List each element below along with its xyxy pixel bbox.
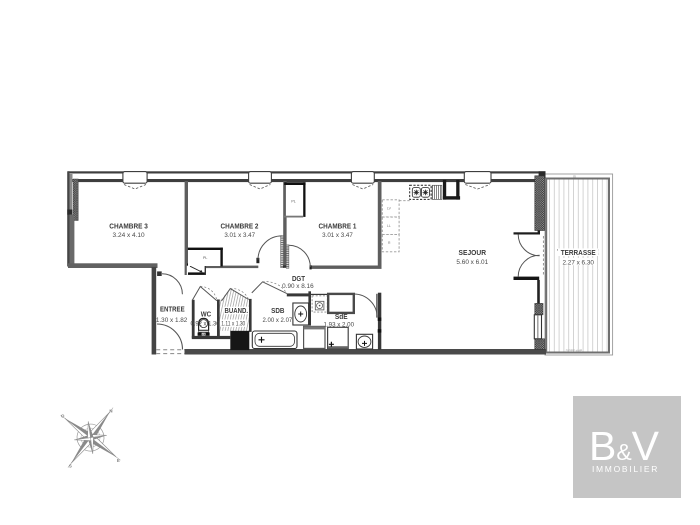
svg-text:ENTREE: ENTREE — [160, 305, 185, 314]
svg-text:PL: PL — [291, 199, 295, 203]
svg-text:1.93 x 2.00: 1.93 x 2.00 — [324, 322, 355, 329]
svg-text:N: N — [109, 409, 112, 414]
svg-text:3.01 x 3.47: 3.01 x 3.47 — [224, 232, 255, 239]
svg-text:TERRASSE: TERRASSE — [561, 248, 596, 257]
svg-text:5.60 x 6.01: 5.60 x 6.01 — [456, 259, 488, 266]
svg-text:E: E — [117, 458, 120, 463]
svg-text:O: O — [61, 413, 65, 418]
svg-text:DPPF+HP: DPPF+HP — [566, 349, 583, 353]
svg-text:BUAND.: BUAND. — [225, 306, 249, 315]
svg-text:2.00 x 2.07: 2.00 x 2.07 — [263, 317, 293, 324]
svg-text:3.01 x 3.47: 3.01 x 3.47 — [322, 232, 353, 239]
svg-text:CHAMBRE 1: CHAMBRE 1 — [319, 222, 357, 231]
svg-text:0.90 x 8.16: 0.90 x 8.16 — [282, 283, 314, 290]
svg-text:3.24 x 4.10: 3.24 x 4.10 — [113, 232, 145, 239]
svg-text:CHAMBRE 3: CHAMBRE 3 — [109, 222, 148, 231]
svg-text:2.27 x 6.30: 2.27 x 6.30 — [563, 259, 595, 266]
svg-text:1.30 x 1.82: 1.30 x 1.82 — [156, 317, 188, 324]
svg-text:SDB: SDB — [271, 306, 284, 315]
svg-text:DGT: DGT — [292, 274, 306, 283]
svg-text:WC: WC — [201, 309, 212, 318]
svg-text:S: S — [69, 463, 72, 468]
svg-text:SEJOUR: SEJOUR — [459, 248, 487, 257]
svg-text:m: m — [573, 174, 576, 178]
svg-text:CHAMBRE 2: CHAMBRE 2 — [221, 222, 259, 231]
svg-text:IMMOBILIER: IMMOBILIER — [592, 464, 659, 474]
svg-text:1.11 x 1.30: 1.11 x 1.30 — [221, 321, 245, 328]
svg-text:PL: PL — [203, 256, 207, 260]
svg-text:0.92 x 1.30: 0.92 x 1.30 — [190, 320, 219, 327]
svg-text:SdE: SdE — [335, 312, 348, 321]
svg-text:LL: LL — [387, 224, 391, 228]
